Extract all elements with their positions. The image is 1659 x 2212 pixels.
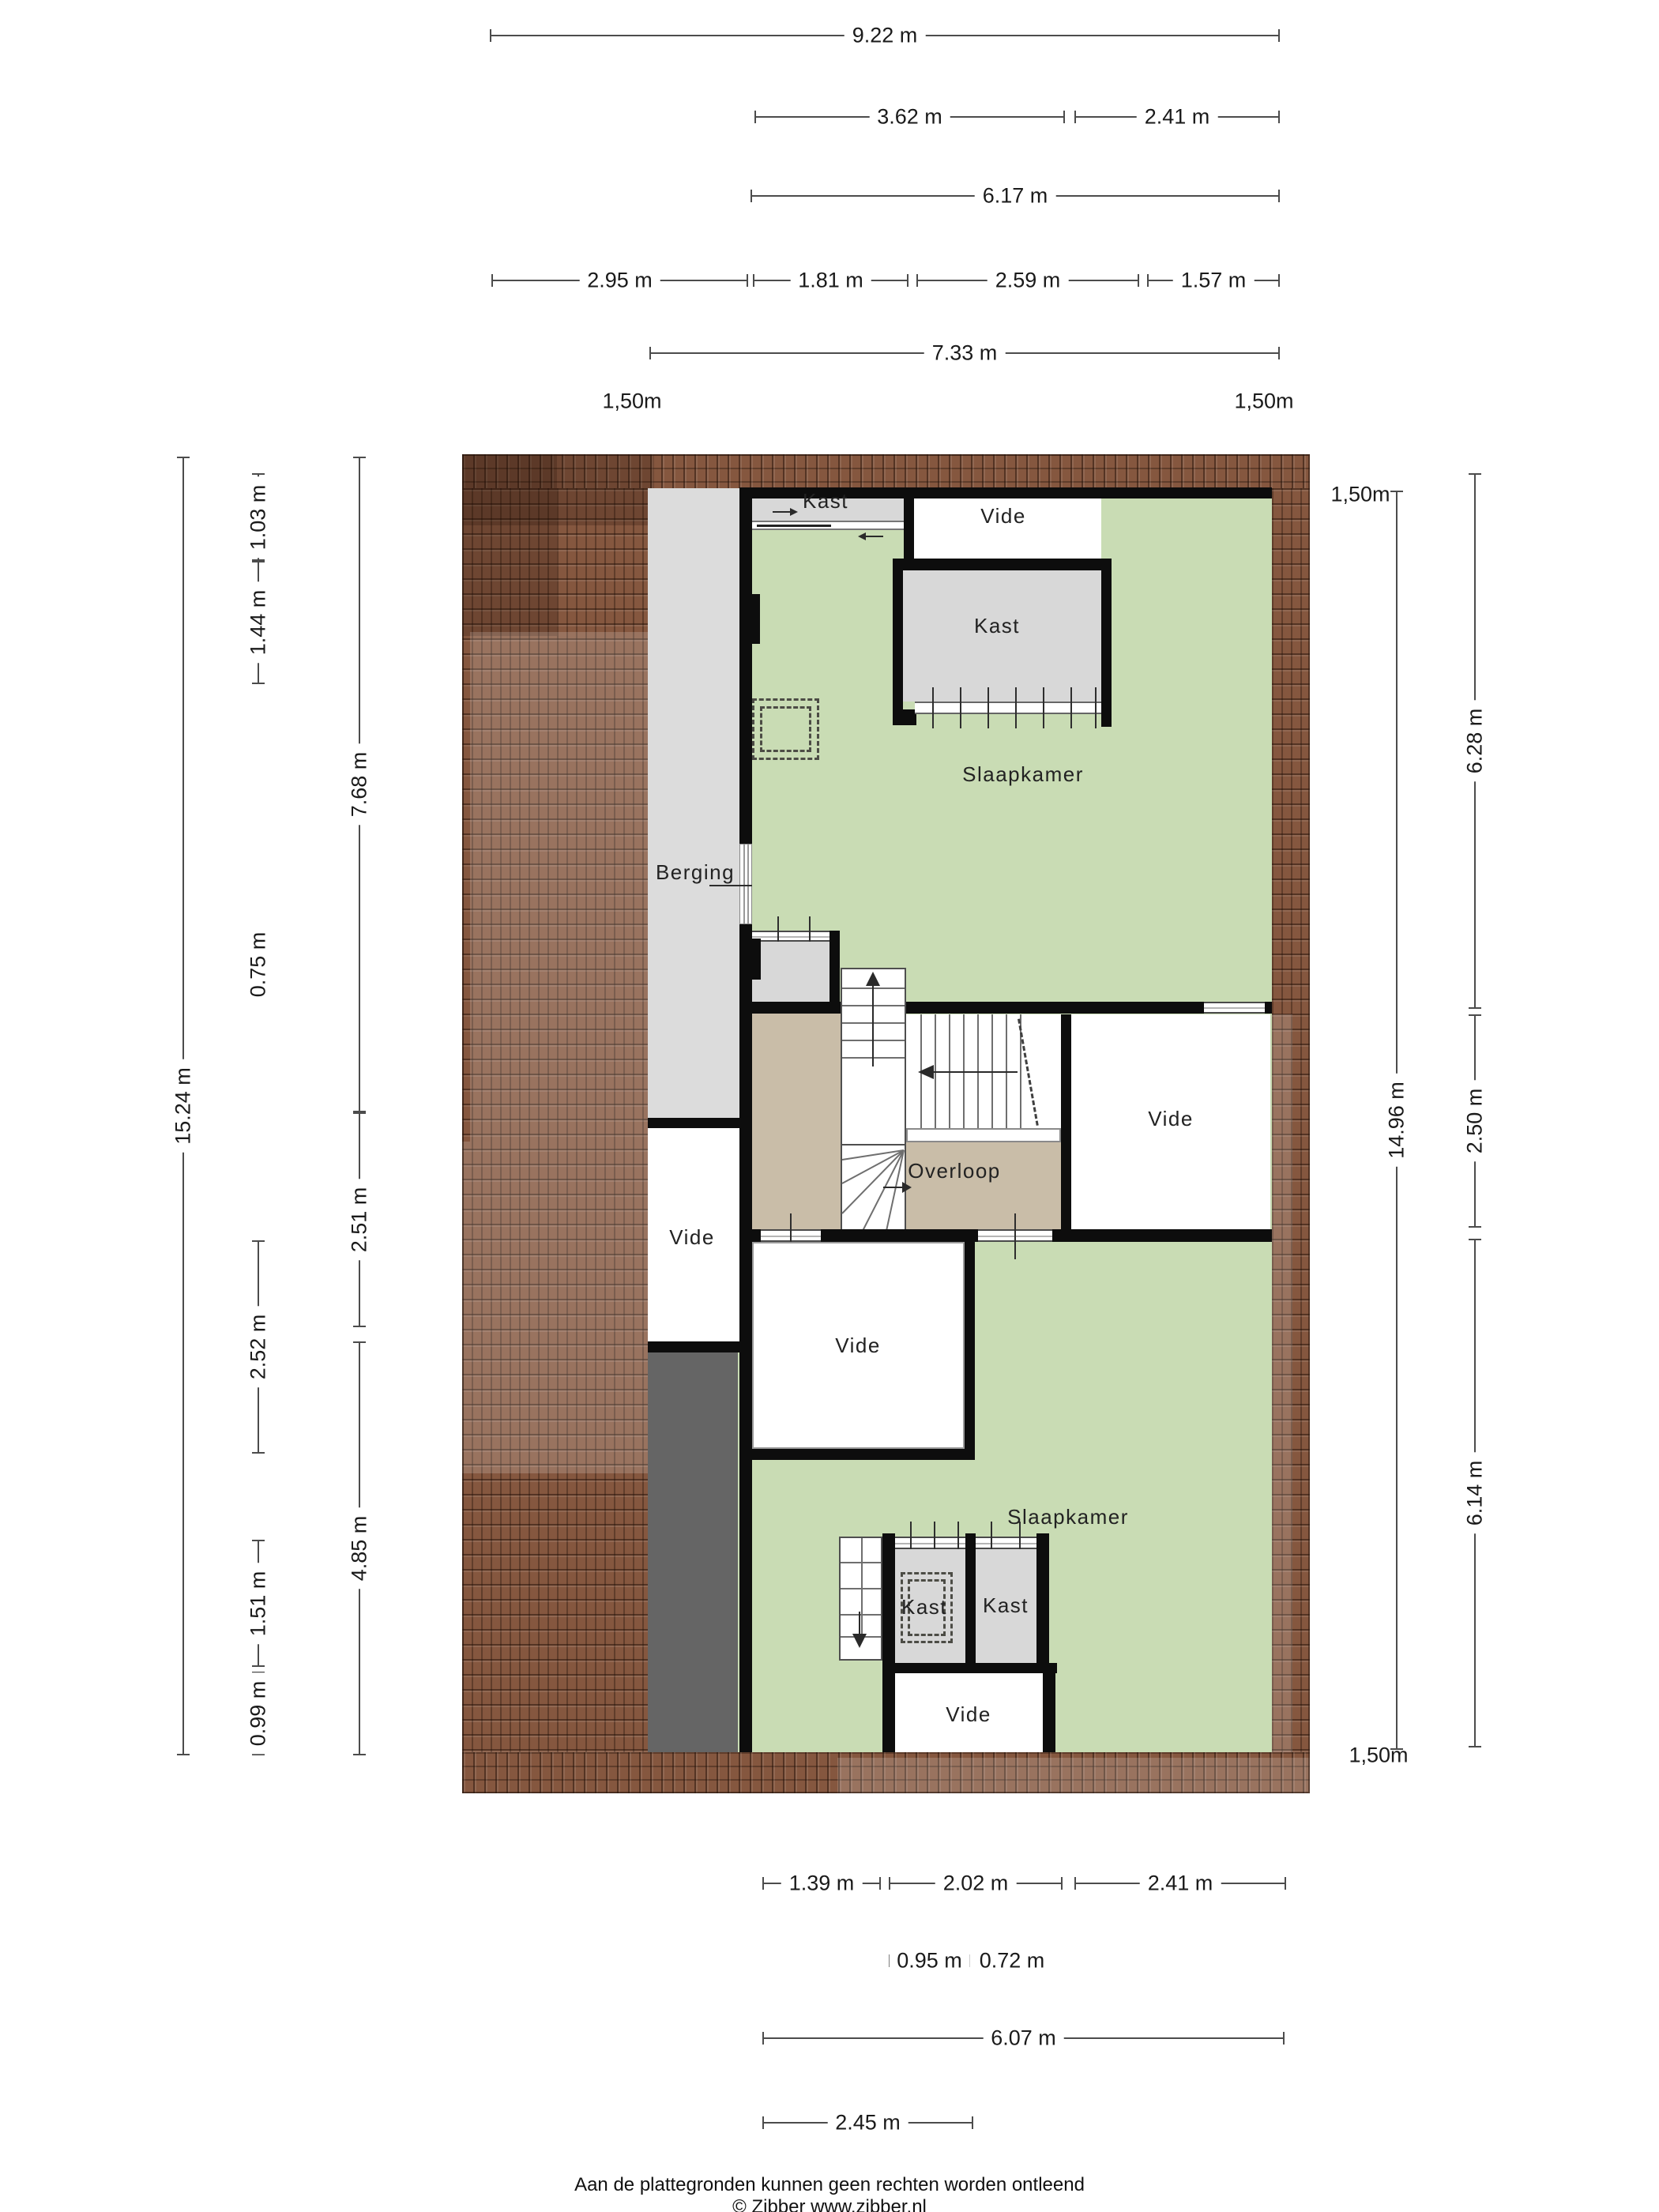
wardrobe-rail [915, 702, 1101, 714]
wall [965, 1533, 976, 1663]
window-smallroom [752, 931, 829, 942]
wall [648, 1118, 752, 1128]
wall [1043, 1673, 1055, 1752]
room-label-vide-bottom: Vide [946, 1704, 991, 1725]
room-berging [648, 488, 739, 1118]
wall [906, 1002, 1204, 1014]
wall-stub [750, 594, 760, 644]
wall [829, 931, 840, 1003]
wall [893, 570, 903, 725]
room-label-kast-big: Kast [974, 615, 1020, 636]
room-label-vide-top: Vide [980, 506, 1026, 526]
window-bedroom1 [1204, 1002, 1265, 1014]
door-tick [709, 885, 752, 886]
wall-stub [750, 939, 761, 980]
door-berging [739, 844, 752, 924]
sliding-door [752, 521, 904, 530]
room-label-slaapkamer-1: Slaapkamer [962, 764, 1084, 784]
wall [882, 1663, 1057, 1673]
floorplan-page: Berging Slaapkamer Kast Vide Kast Vide O… [0, 0, 1659, 2212]
wall [648, 1341, 752, 1352]
scale-marker-label: 1,50m [1330, 483, 1390, 507]
wall-stub [893, 709, 916, 725]
wall [1061, 1014, 1071, 1242]
room-small-gray [752, 942, 840, 1003]
wall [882, 1673, 895, 1752]
scale-marker-label: 1,50m [1349, 1744, 1408, 1768]
room-label-vide-left: Vide [669, 1227, 715, 1247]
room-label-vide-right: Vide [1148, 1108, 1194, 1129]
room-label-overloop: Overloop [908, 1161, 1001, 1181]
scale-marker-label: 1,50m [602, 389, 661, 414]
footer-disclaimer: Aan de plattegronden kunnen geen rechten… [574, 2174, 1085, 2196]
dark-roof-strip [648, 1352, 738, 1752]
room-label-berging: Berging [656, 862, 735, 882]
wall [739, 924, 752, 1752]
room-label-vide-center: Vide [835, 1335, 881, 1356]
stair-winder [841, 1144, 906, 1232]
window-kast1 [895, 1537, 965, 1549]
wall [739, 1449, 975, 1460]
scale-marker-label: 1,50m [1234, 389, 1293, 414]
wall [893, 559, 1112, 570]
wall [965, 1242, 975, 1460]
room-overloop-left [752, 1014, 841, 1231]
footer-credit: © Zibber www.zibber.nl [732, 2196, 927, 2212]
wall [1101, 559, 1112, 727]
window-kast2 [976, 1537, 1036, 1549]
room-label-slaapkamer-2: Slaapkamer [1007, 1507, 1129, 1527]
wall [739, 488, 752, 844]
skylight-dashed-inner [760, 706, 811, 752]
window-tick [1014, 1213, 1016, 1259]
wall [1036, 1533, 1049, 1673]
room-label-kast-b2: Kast [983, 1595, 1029, 1616]
wall [739, 1002, 841, 1014]
wall [1265, 1002, 1272, 1014]
room-label-kast-top: Kast [803, 491, 848, 511]
stair-landing [906, 1128, 1061, 1142]
wall [882, 1533, 895, 1673]
room-label-kast-b1: Kast [901, 1597, 947, 1617]
room-overloop-right [906, 1142, 1061, 1231]
